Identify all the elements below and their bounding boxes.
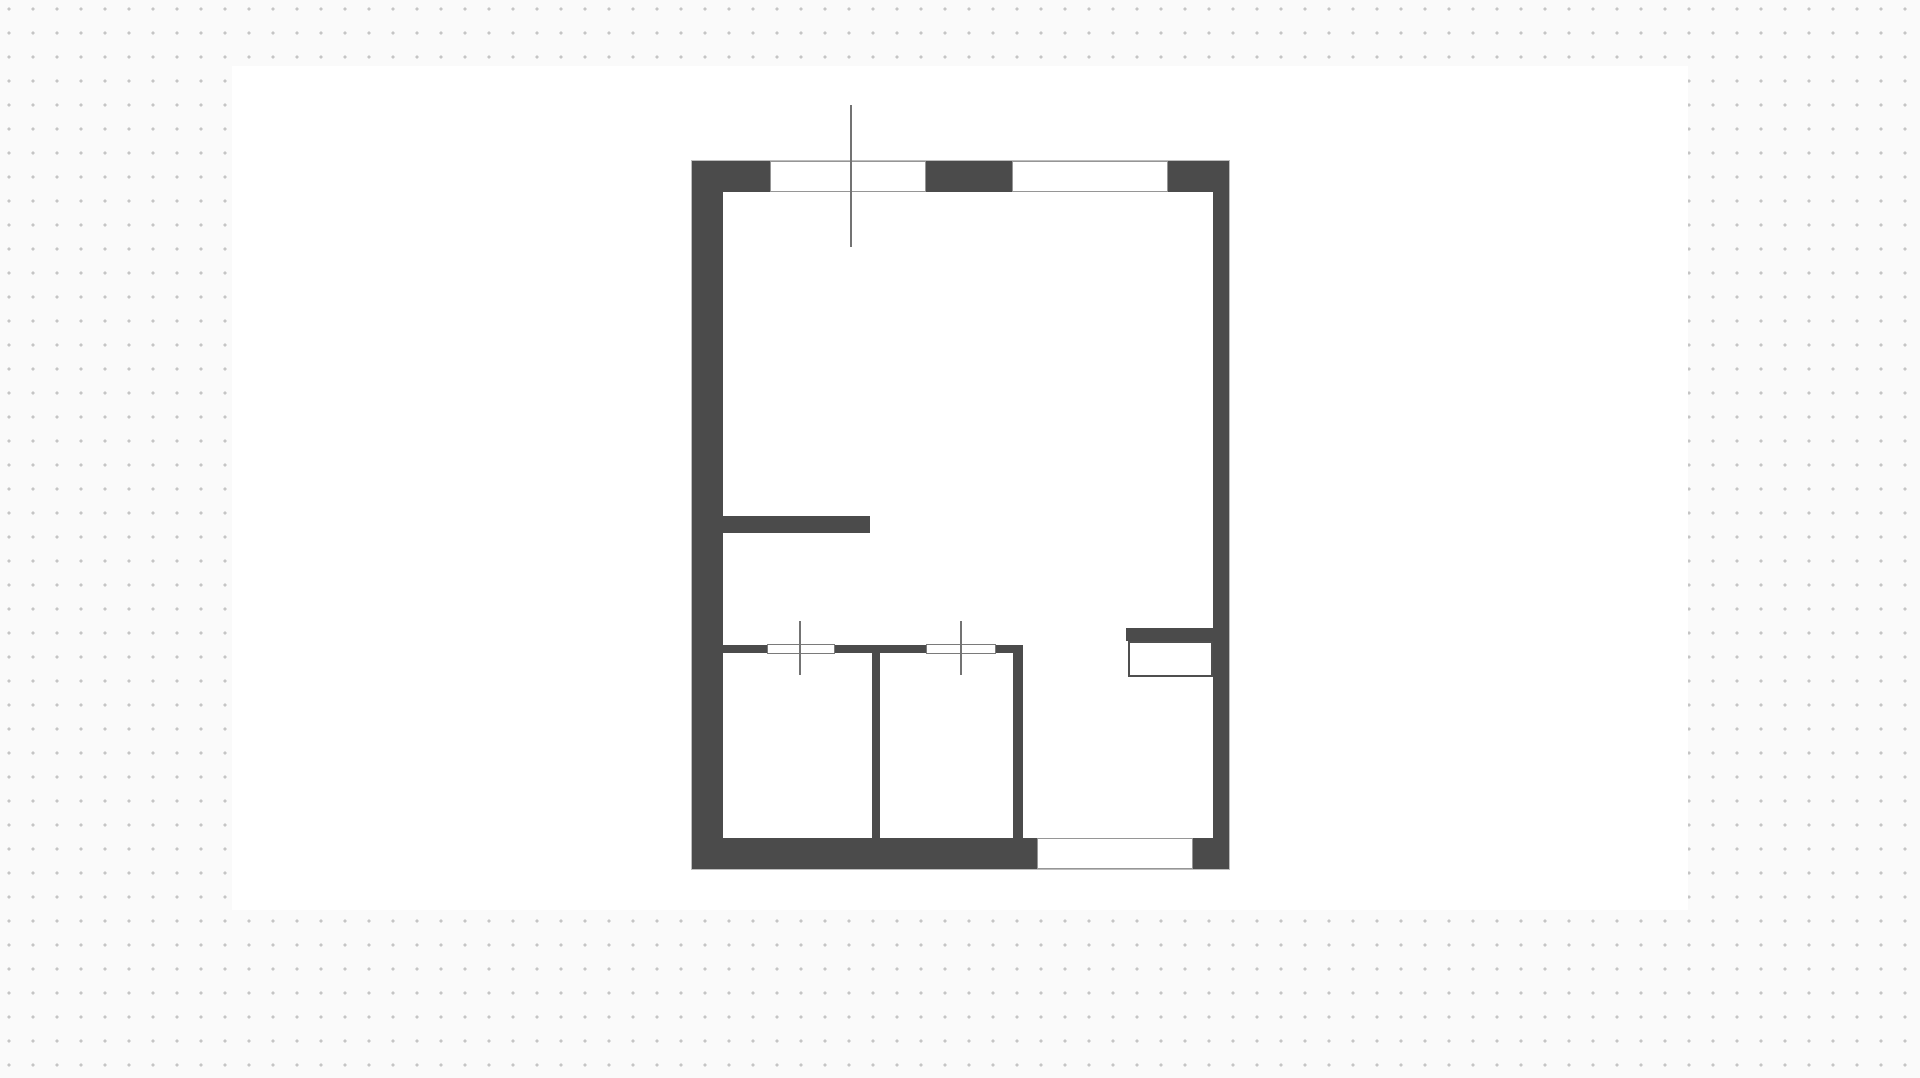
window-bottom[interactable] xyxy=(1037,838,1193,869)
window-top-left[interactable] xyxy=(770,161,926,192)
fixture-counter-bar[interactable] xyxy=(1126,628,1213,641)
door-marker-2[interactable] xyxy=(960,621,962,675)
door-marker-1[interactable] xyxy=(799,621,801,675)
guide-line[interactable] xyxy=(850,105,852,247)
wall-interior-stub-left[interactable] xyxy=(723,516,870,533)
wall-interior-vertical-2[interactable] xyxy=(1013,645,1023,838)
floor-plan-layer xyxy=(0,0,1920,1078)
wall-exterior-right[interactable] xyxy=(1213,161,1229,869)
wall-interior-vertical-1[interactable] xyxy=(872,645,880,838)
floor-plan-editor-canvas xyxy=(0,0,1920,1078)
door-opening-1[interactable] xyxy=(767,644,835,654)
fixture-counter-box[interactable] xyxy=(1128,641,1213,677)
wall-exterior-left[interactable] xyxy=(692,161,723,869)
plan-outline xyxy=(691,160,1230,870)
window-top-right[interactable] xyxy=(1012,161,1168,192)
